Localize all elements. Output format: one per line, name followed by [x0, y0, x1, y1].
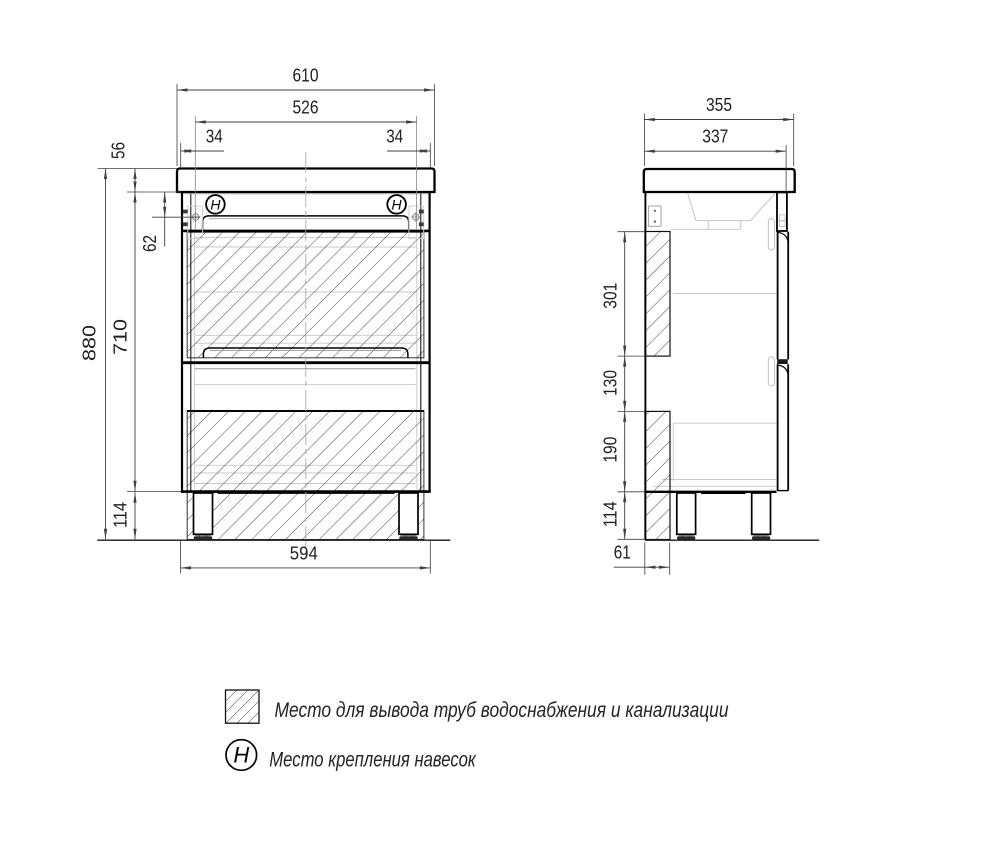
svg-text:880: 880 — [80, 325, 100, 361]
svg-text:710: 710 — [110, 319, 130, 355]
svg-text:594: 594 — [290, 544, 318, 564]
svg-text:114: 114 — [110, 502, 130, 528]
svg-text:355: 355 — [706, 95, 732, 115]
svg-text:56: 56 — [109, 142, 129, 159]
svg-text:610: 610 — [293, 66, 319, 86]
svg-text:190: 190 — [601, 437, 621, 463]
svg-text:114: 114 — [601, 501, 621, 527]
svg-text:Место крепления навесок: Место крепления навесок — [269, 748, 476, 771]
svg-text:H: H — [210, 197, 221, 213]
svg-text:526: 526 — [293, 98, 319, 118]
svg-text:130: 130 — [601, 370, 621, 396]
svg-text:301: 301 — [601, 283, 621, 309]
svg-text:Место для вывода труб водоснаб: Место для вывода труб водоснабжения и ка… — [275, 699, 729, 722]
svg-text:337: 337 — [702, 127, 728, 147]
svg-text:61: 61 — [614, 542, 631, 562]
svg-text:34: 34 — [386, 127, 403, 147]
svg-text:H: H — [233, 743, 249, 768]
svg-text:34: 34 — [206, 127, 223, 147]
svg-text:H: H — [392, 197, 403, 213]
svg-text:62: 62 — [140, 235, 160, 252]
